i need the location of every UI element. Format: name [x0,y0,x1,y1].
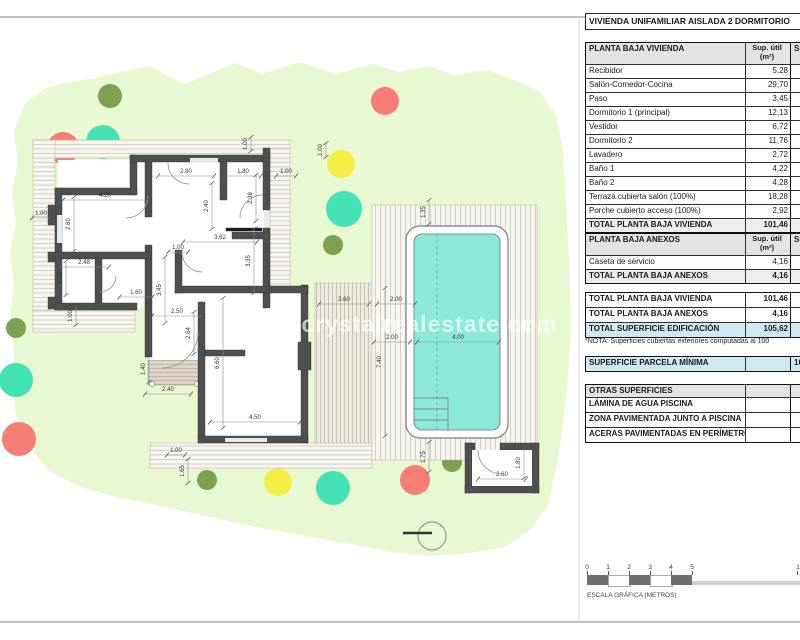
table-row: Baño 14,22 [586,162,800,176]
table-cell [790,270,800,283]
scale-segment [650,575,673,587]
scale-tick-label: 1 [788,564,800,571]
table-cell: Porche cubierto acceso (100%) [586,205,745,218]
table-cell: 10 [790,357,800,371]
table-cell: Caseta de servicio [586,256,745,269]
table-cell: Vestidor [586,121,745,134]
table-cell: Salón-Comedor-Cocina [586,79,745,92]
nota-text: *NOTA: Superficies cubiertas exteriores … [585,338,800,345]
svg-text:2.60: 2.60 [496,472,508,478]
table-row: Baño 24,28 [586,176,800,190]
scale-tick-label: 5 [682,564,702,571]
svg-text:1.60: 1.60 [130,290,142,296]
watermark-text: www.crystalrealestate.com [237,311,557,337]
table-row: TOTAL PLANTA BAJA VIVIENDA101,46 [586,218,800,232]
table-row: Dormitorio 1 (principal)12,13 [586,106,800,120]
tree [400,465,430,495]
tree [264,468,292,496]
table-cell: 2,72 [745,149,790,162]
table-row: Lavadero2,72 [586,148,800,162]
table-cell: Sup. útil (m²) [745,234,790,255]
tree [98,84,122,108]
table-cell: Lavadero [586,149,745,162]
table-cell [790,121,800,134]
table-cell [790,256,800,269]
table-cell: Dormitorio 1 (principal) [586,107,745,120]
tree [197,470,217,490]
table-cell: TOTAL SUPERFICIE EDIFICACIÓN [586,323,745,337]
svg-text:2.64: 2.64 [186,327,192,339]
table-cell [790,293,800,307]
table-cell: SUPERFICIE PARCELA MÍNIMA [586,357,745,371]
table-cell: TOTAL PLANTA BAJA ANEXOS [586,270,745,283]
svg-text:1.35: 1.35 [421,206,427,218]
table-row: Paso3,45 [586,92,800,106]
tree [327,150,355,178]
table-cell [790,79,800,92]
svg-text:1.80: 1.80 [516,457,522,469]
table-row: Recibidor5,28 [586,64,800,78]
scale-tick-label: 1 [598,564,618,571]
svg-text:2.80: 2.80 [180,169,192,175]
scale-tick-label: 2 [619,564,639,571]
table-row: ZONA PAVIMENTADA JUNTO A PISCINA [586,412,800,427]
table-cell: 5,28 [745,65,790,78]
table-cell: 3,45 [745,93,790,106]
table-cell [790,149,800,162]
svg-text:3.35: 3.35 [246,255,252,267]
svg-text:2.00: 2.00 [390,297,402,303]
table-cell [790,219,800,232]
table-cell: 12,13 [745,107,790,120]
table-row: ACERAS PAVIMENTADAS EN PERÍMETRO [586,427,800,442]
svg-text:1.40: 1.40 [141,363,147,375]
table-row: Dormitorio 211,76 [586,134,800,148]
table-cell [790,385,800,397]
scale-tick [692,571,693,575]
table-cell [790,308,800,322]
caseta-floor [472,450,532,486]
svg-text:6.60: 6.60 [215,357,221,369]
svg-text:1.00: 1.00 [172,245,184,251]
table-row: Salón-Comedor-Cocina29,70 [586,78,800,92]
tree [6,318,26,338]
table-superficie-parcela: SUPERFICIE PARCELA MÍNIMA10 [585,356,800,372]
svg-text:2.80: 2.80 [66,218,72,230]
tree [316,471,350,505]
scale-tick [797,571,798,575]
plan-sheet: { "sheet": { "title": "VIVIENDA UNIFAMIL… [0,0,800,640]
table-cell [745,385,790,397]
table-cell: 18,28 [745,191,790,204]
table-cell: 11,76 [745,135,790,148]
svg-text:2.60: 2.60 [338,297,350,303]
table-cell [790,93,800,106]
svg-text:7.40: 7.40 [377,356,383,368]
tree [326,191,362,227]
table-cell: ACERAS PAVIMENTADAS EN PERÍMETRO [586,428,745,442]
table-resumen-totales: TOTAL PLANTA BAJA VIVIENDA101,46TOTAL PL… [585,292,800,338]
table-cell: PLANTA BAJA ANEXOS [586,234,745,255]
table-cell [790,191,800,204]
svg-text:1.65: 1.65 [180,465,186,477]
table-row: OTRAS SUPERFICIES [586,385,800,397]
table-cell: Recibidor [586,65,745,78]
table-cell [790,135,800,148]
svg-text:2.50: 2.50 [171,309,183,315]
tree [323,235,343,255]
perimeter-sidewalk-bottomleft [33,310,135,332]
svg-text:1.00: 1.00 [170,448,182,454]
svg-text:1.00: 1.00 [68,310,74,322]
svg-text:1.00: 1.00 [35,211,47,217]
table-cell [790,323,800,337]
table-cell [790,398,800,412]
svg-text:3.45: 3.45 [157,284,163,296]
table-cell: ZONA PAVIMENTADA JUNTO A PISCINA [586,413,745,427]
table-cell: 4,16 [745,256,790,269]
table-cell [790,205,800,218]
table-cell: 101,46 [745,293,790,307]
table-cell: Sup [790,234,800,255]
table-planta-baja-anexos: PLANTA BAJA ANEXOSSup. útil (m²)SupCaset… [585,233,800,284]
svg-text:1.00: 1.00 [243,138,249,150]
table-cell: LÁMINA DE AGUA PISCINA [586,398,745,412]
table-cell [745,413,790,427]
table-cell [790,65,800,78]
svg-text:1.70: 1.70 [58,272,64,284]
table-cell: 2,92 [745,205,790,218]
table-cell [790,163,800,176]
table-cell: 105,62 [745,323,790,337]
table-cell [790,413,800,427]
table-cell [745,357,790,371]
table-cell: TOTAL PLANTA BAJA ANEXOS [586,308,745,322]
tree [0,363,33,397]
table-row: SUPERFICIE PARCELA MÍNIMA10 [586,357,800,371]
table-row: TOTAL PLANTA BAJA ANEXOS4,16 [586,307,800,322]
table-cell [790,428,800,442]
table-row: LÁMINA DE AGUA PISCINA [586,397,800,412]
table-cell: Sup. útil (m²) [745,43,790,64]
svg-text:2.48: 2.48 [78,260,90,266]
table-cell: 4,22 [745,163,790,176]
scale-segment [629,575,650,585]
table-row: Vestidor6,72 [586,120,800,134]
table-otras-superficies: OTRAS SUPERFICIESLÁMINA DE AGUA PISCINAZ… [585,384,800,443]
table-cell: 29,70 [745,79,790,92]
scale-bar-line [692,581,800,585]
table-cell [745,398,790,412]
table-cell: 101,46 [745,219,790,232]
svg-text:3.62: 3.62 [214,235,226,241]
covered-terrace [315,283,372,443]
table-row: TOTAL PLANTA BAJA ANEXOS4,16 [586,269,800,283]
table-cell: PLANTA BAJA VIVIENDA [586,43,745,64]
table-cell: Terraza cubierta salón (100%) [586,191,745,204]
svg-text:1.75: 1.75 [421,451,427,463]
tree [2,422,36,456]
table-cell: OTRAS SUPERFICIES [586,385,745,397]
scale-tick-label: 0 [577,564,597,571]
table-cell: 4,16 [745,308,790,322]
svg-text:2.40: 2.40 [162,387,174,393]
scale-segment [671,575,692,585]
table-row: Porche cubierto acceso (100%)2,92 [586,204,800,218]
table-cell: TOTAL PLANTA BAJA VIVIENDA [586,293,745,307]
scale-caption: ESCALA GRÁFICA (METROS) [587,592,677,599]
table-cell: Paso [586,93,745,106]
tree [371,87,399,115]
svg-text:2.38: 2.38 [248,192,254,204]
scale-segment [587,575,608,585]
table-cell: Sup [790,43,800,64]
svg-text:1.00: 1.00 [280,169,292,175]
summary-panel: VIVIENDA UNIFAMILIAR AISLADA 2 DORMITORI… [585,0,800,640]
svg-text:4.50: 4.50 [249,415,261,421]
table-cell [790,107,800,120]
entry-post [150,382,155,387]
scale-tick-label: 3 [640,564,660,571]
table-row: TOTAL PLANTA BAJA VIVIENDA101,46 [586,293,800,307]
table-cell: TOTAL PLANTA BAJA VIVIENDA [586,219,745,232]
table-row: TOTAL SUPERFICIE EDIFICACIÓN105,62 [586,322,800,337]
table-cell: Baño 1 [586,163,745,176]
svg-text:1.00: 1.00 [318,144,324,156]
scale-segment [608,575,631,587]
table-row: PLANTA BAJA VIVIENDASup. útil (m²)Sup [586,43,800,64]
table-cell [745,428,790,442]
svg-text:1.80: 1.80 [237,169,249,175]
table-cell: Dormitorio 2 [586,135,745,148]
table-row: Terraza cubierta salón (100%)18,28 [586,190,800,204]
table-planta-baja-vivienda: PLANTA BAJA VIVIENDASup. útil (m²)SupRec… [585,42,800,233]
table-row: Caseta de servicio4,16 [586,255,800,269]
sheet-title: VIVIENDA UNIFAMILIAR AISLADA 2 DORMITORI… [585,13,800,30]
table-cell: 6,72 [745,121,790,134]
scale-tick-label: 4 [661,564,681,571]
table-cell: 4,16 [745,270,790,283]
table-row: PLANTA BAJA ANEXOSSup. útil (m²)Sup [586,234,800,255]
svg-text:4.20: 4.20 [99,193,111,199]
table-cell: Baño 2 [586,177,745,190]
svg-text:2.40: 2.40 [204,200,210,212]
perimeter-sidewalk-bottom [150,443,372,468]
table-cell: 4,28 [745,177,790,190]
table-cell [790,177,800,190]
